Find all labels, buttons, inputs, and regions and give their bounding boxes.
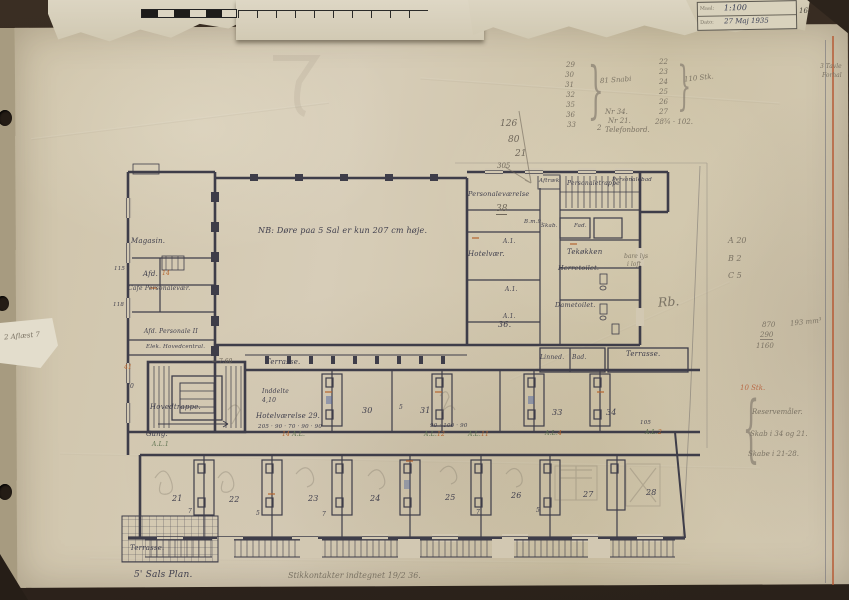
pencil-brace: } [677,55,691,117]
room-label-gang: Gang. [146,431,168,439]
pencil-sum-290: 290 [760,331,773,340]
dims-mid: 90 · 100 · 90 [430,423,468,429]
room-label-personalebad: Personalebad [612,177,652,183]
pencil-col2-item: 22 [659,58,668,66]
pencil-edge-r2: Forhal [822,73,842,80]
mark-7: 7 [322,512,326,519]
pencil-col1-item: 30 [565,71,574,79]
dim-80: 80 [508,135,519,145]
shaft-stacks-upper [322,374,610,426]
room-number-24: 24 [370,495,381,504]
pencil-col1-item: 32 [566,91,575,99]
dim-115: 115 [114,266,125,272]
title-annotation: Stikkontakter indtegnet 19/2 36. [288,571,421,580]
dim-70: 70 [126,384,134,391]
wc-fixtures [600,274,619,334]
room-number-25: 25 [445,494,456,503]
pencil-col2-item: 25 [659,88,668,96]
room-label-afd: Afd. [143,271,158,279]
nb-note: NB: Døre paa 5 Sal er kun 207 cm høje. [258,227,427,236]
note-lys-1: bare lys [624,254,648,261]
al-mark: A.L.11 [468,432,489,439]
room-number-33: 33 [552,409,563,418]
room-number-23: 23 [308,495,319,504]
al-num: 2 [658,429,662,436]
scale-bar [141,9,237,18]
al-mark: 14 A.L. [282,432,305,439]
trappe-dim: ← 7.60 [212,359,232,366]
room-label-herretoilet: Herretoilet. [558,265,599,272]
room-label-cafe-personalevaer: Café Personalevær. [128,286,190,293]
room-label-magasin: Magasin. [131,238,165,246]
pencil-low-3: Skabe i 21-28. [748,450,799,458]
inddelte-line1: Inddelte [262,389,289,396]
room-label-dametoilet: Dametoilet. [555,302,596,309]
terrasse-label-right: Terrasse. [626,351,661,359]
al-mark: A.L.4 [545,431,562,438]
pencil-low-2: Skab i 34 og 21. [750,430,808,438]
drawing-frame [455,163,707,538]
plan-title: 5' Sals Plan. [134,571,193,581]
pencil-col2-item: 24 [659,78,668,86]
al-text: A.L. [468,431,481,438]
pencil-sum-line: 28¾ · 102. [655,118,693,126]
room-label-hotelvaerelse-29: Hotelværelse 29. [256,413,320,421]
mark-5: 5 [399,405,403,412]
al-text: A.L. [645,429,658,436]
pencil-brace: } [588,55,604,127]
pencil-nr21: Nr 21. [608,117,631,125]
afd-number: 14 [162,271,170,278]
scale-ruler-ticks [238,10,428,18]
pencil-sum-1160: 1160 [756,342,774,350]
room-label-bad: Bad. [572,355,587,362]
ghost-sketch [255,48,335,118]
inddelte-line2: 4,10 [262,398,276,405]
stamp-date-value: 27 Maj 1935 [724,17,769,26]
dim-126: 126 [500,119,517,129]
stamp-side-mark: 16. [799,7,810,15]
room-number-27: 27 [583,491,594,500]
al-num: 14 [282,431,290,438]
pencil-brace-left: { [743,386,760,471]
room-label-hotelvaer: Hotelvær. [468,251,505,259]
mark-7: 7 [476,510,480,517]
room-label-fad: Fad. [574,223,587,229]
room-number-30: 30 [362,407,373,416]
dim-305: 305 [497,162,510,170]
note-lys-2: i loft [627,262,641,269]
dim-41: 41 [124,365,132,372]
pencil-abc-c: C 5 [728,271,742,280]
stamp-row: Dato: 27 Maj 1935 [698,15,796,30]
pencil-low-0: 10 Stk. [740,384,765,392]
terrasse-label-mid: Terrasse. [266,359,301,367]
room-label-aftraek: Aftræk [539,178,559,184]
mark-5: 5 [256,511,260,518]
room-label-tekokken: Tekøkken [567,249,602,257]
pencil-col2-item: 23 [659,68,668,76]
photograph-of-floor-plan: Maal: 1:100 Dato: 27 Maj 1935 16. 2 Aflæ… [0,0,849,600]
pencil-low-1: Reservemåler. [752,408,803,416]
pencil-abc-b: B 2 [728,254,742,263]
room-number-34: 34 [606,409,617,418]
al-num: 11 [481,431,489,438]
room-number-31: 31 [420,407,431,416]
margin-line-red [832,36,834,585]
a1-mark: A.1. [505,287,518,294]
al-text: A.L. [424,431,437,438]
room-label-skab: Skab. [541,223,558,229]
dim-118: 118 [113,302,124,308]
title-stamp: Maal: 1:100 Dato: 27 Maj 1935 [697,0,797,31]
pencil-col1-item: 36 [566,111,575,119]
room-label-elek: Elek. Hovedcentral. [146,344,205,350]
mark-7: 7 [188,509,192,516]
pencil-col1-item: 29 [566,61,575,69]
room-number-26: 26 [511,492,522,501]
pencil-col1-extra: 2 [597,124,601,132]
room-number-36: 36. [498,321,511,330]
room-number-21: 21 [172,495,183,504]
room-number-28: 28 [646,489,657,498]
pencil-col2-item: 26 [659,98,668,106]
room-number-22: 22 [229,496,240,505]
al-mark: A.L.12 [424,432,445,439]
dim-21: 21 [515,149,526,159]
al-num: 12 [437,431,445,438]
pencil-nr34: Nr 34. [605,108,628,116]
stamp-date-label: Dato: [700,20,714,26]
al-mark: A.L.2 [645,430,662,437]
al-mark-1: A.L.1 [152,442,169,449]
room-label-linned: Linned. [540,355,564,362]
room-label-personalevaerelse: Personaleværelse [468,191,529,198]
pencil-col2-item: 27 [659,108,668,116]
dims-right: 105 [640,420,651,426]
pencil-abc-a: A 20 [728,236,747,245]
note-38: 38 [496,204,507,215]
pencil-edge-r1: 3 Tavle [820,64,842,71]
pencil-col1-item: 31 [565,81,574,89]
pencil-col1-item: 33 [567,121,576,129]
pencil-col1-item: 35 [566,101,575,109]
al-num: 4 [558,430,562,437]
pencil-sum-870: 870 [762,321,775,329]
stamp-scale-value: 1:100 [724,3,747,12]
main-stairs [154,366,241,428]
margin-line-grey [825,40,826,583]
pencil-tel: Telefonbord. [605,126,650,134]
wall-piers [211,174,438,356]
room-label-hovedtrappe: Hovedtrappe. [150,404,201,412]
dims-room-29: 205 · 90 · 70 · 90 · 90 [258,424,322,430]
balconies [122,516,675,562]
al-text: A.L. [292,431,305,438]
note-rb: Rb. [658,294,680,310]
torn-paper-piece [236,0,484,40]
mark-5: 5 [536,508,540,515]
terrasse-label-bottom: Terrasse. [130,545,165,553]
al-text: A.L. [545,430,558,437]
a1-mark: A.1. [503,239,516,246]
stamp-scale-label: Maal: [700,6,714,12]
room-label-afd-personale: Afd. Personale II [144,329,198,336]
